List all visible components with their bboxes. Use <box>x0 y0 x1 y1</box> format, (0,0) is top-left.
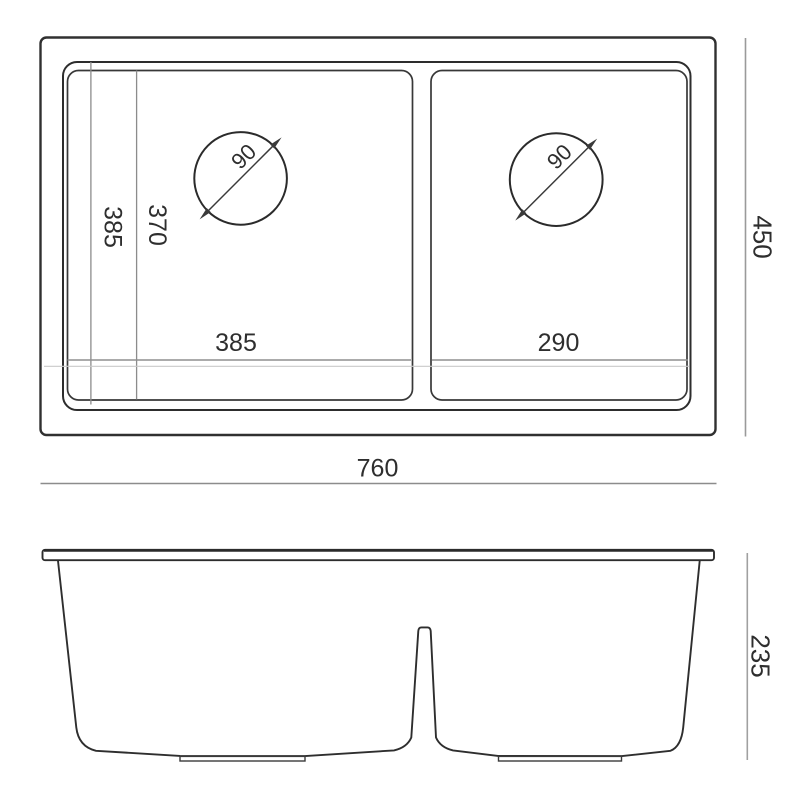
svg-text:385: 385 <box>215 329 257 357</box>
svg-text:235: 235 <box>746 634 776 677</box>
svg-text:760: 760 <box>357 454 399 482</box>
svg-text:385: 385 <box>98 206 126 248</box>
svg-text:370: 370 <box>143 204 171 246</box>
svg-text:450: 450 <box>748 215 778 258</box>
svg-text:290: 290 <box>538 329 580 357</box>
